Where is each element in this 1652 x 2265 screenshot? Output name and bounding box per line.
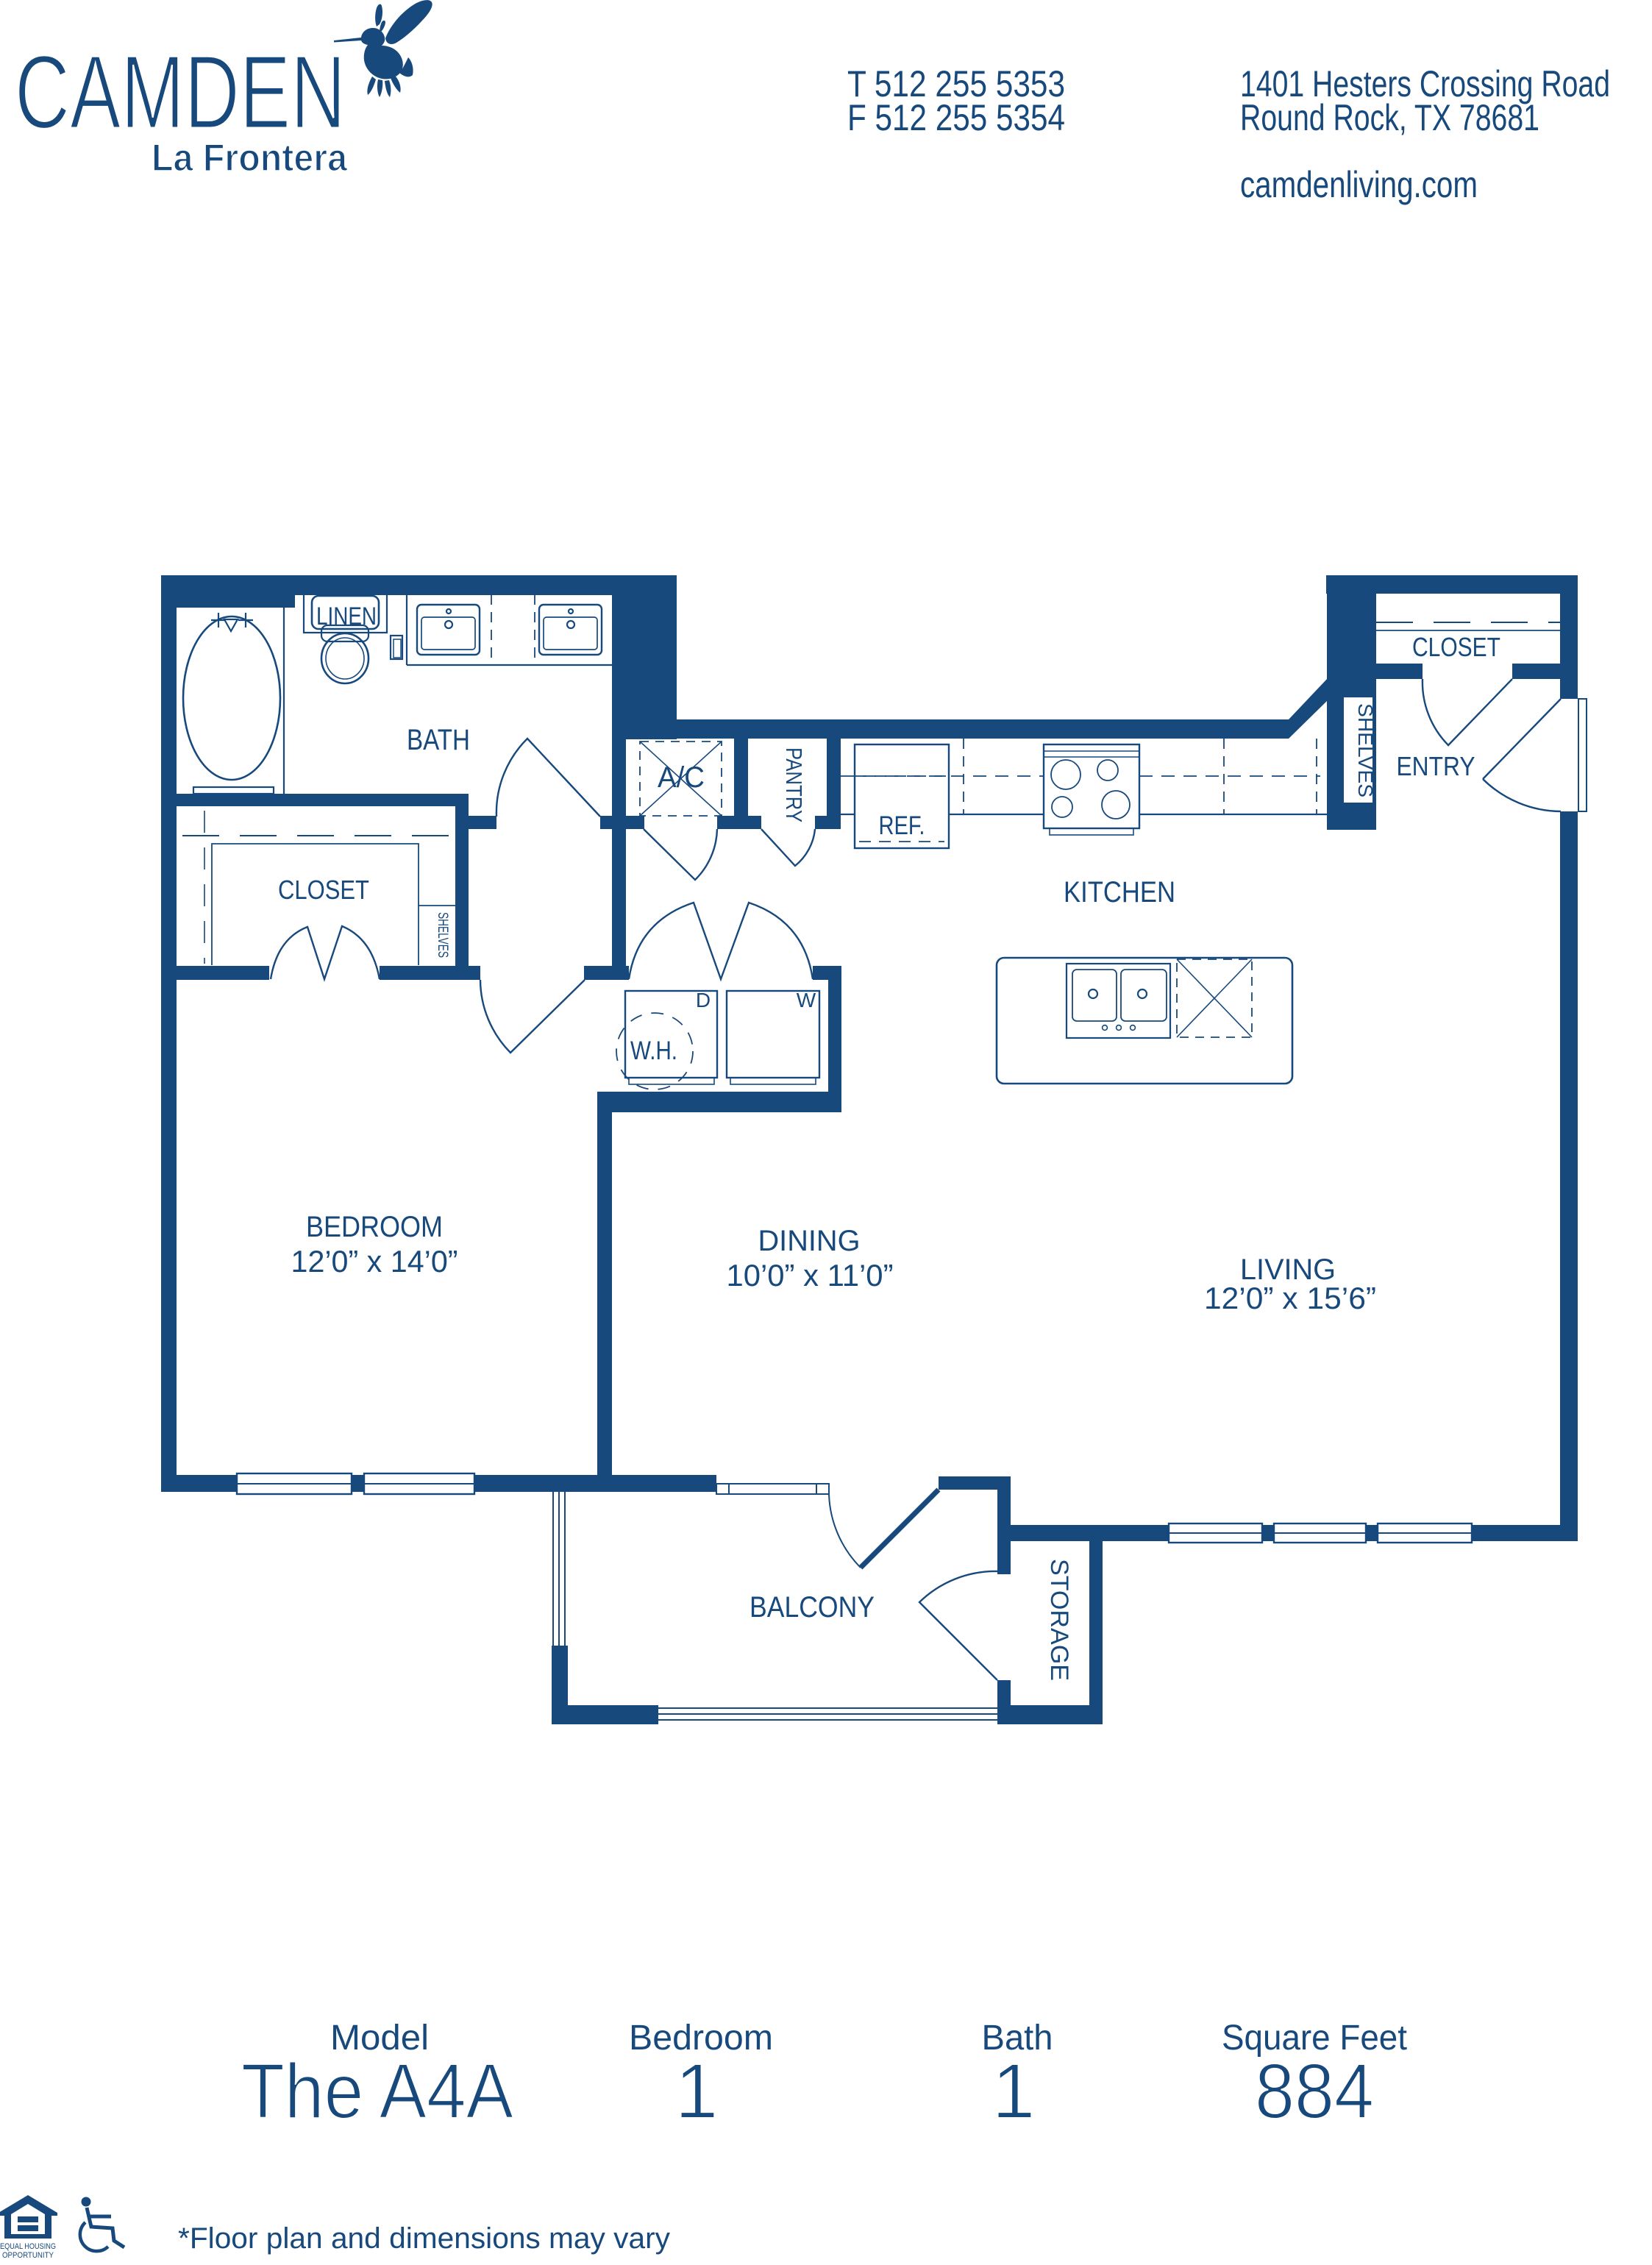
svg-text:884: 884 [1255, 2048, 1374, 2135]
svg-text:STORAGE: STORAGE [1045, 1559, 1073, 1681]
svg-text:La Frontera: La Frontera [152, 137, 348, 179]
svg-text:BALCONY: BALCONY [750, 1591, 875, 1624]
svg-text:KITCHEN: KITCHEN [1064, 876, 1175, 909]
svg-text:CAMDEN: CAMDEN [15, 34, 346, 151]
svg-text:SHELVES: SHELVES [1354, 703, 1377, 797]
svg-text:F 512 255 5354: F 512 255 5354 [847, 97, 1065, 138]
svg-text:12’0” x 15’6”: 12’0” x 15’6” [1204, 1281, 1376, 1315]
svg-text:ENTRY: ENTRY [1397, 751, 1475, 781]
svg-text:12’0” x 14’0”: 12’0” x 14’0” [291, 1244, 458, 1279]
svg-text:SHELVES: SHELVES [435, 912, 450, 958]
svg-text:Round Rock, TX 78681: Round Rock, TX 78681 [1240, 97, 1539, 138]
svg-text:A/C: A/C [658, 761, 705, 794]
svg-text:W: W [797, 989, 816, 1011]
svg-text:The A4A: The A4A [241, 2048, 513, 2135]
svg-text:EQUAL HOUSING: EQUAL HOUSING [0, 2242, 56, 2251]
svg-text:*Floor plan and dimensions may: *Floor plan and dimensions may vary [178, 2222, 670, 2255]
svg-text:REF.: REF. [879, 811, 925, 840]
svg-text:LINEN: LINEN [316, 602, 377, 630]
svg-text:10’0” x 11’0”: 10’0” x 11’0” [727, 1258, 894, 1292]
svg-text:OPPORTUNITY: OPPORTUNITY [2, 2251, 54, 2260]
svg-text:W.H.: W.H. [630, 1037, 677, 1065]
svg-text:camdenliving.com: camdenliving.com [1240, 164, 1478, 205]
svg-text:D: D [696, 989, 711, 1011]
svg-text:CLOSET: CLOSET [1412, 632, 1500, 662]
svg-text:BATH: BATH [407, 724, 470, 756]
svg-text:1: 1 [992, 2048, 1036, 2135]
svg-text:PANTRY: PANTRY [781, 747, 807, 822]
svg-text:DINING: DINING [758, 1225, 861, 1257]
svg-text:1: 1 [675, 2048, 719, 2135]
svg-text:BEDROOM: BEDROOM [306, 1211, 443, 1243]
svg-text:CLOSET: CLOSET [278, 875, 369, 905]
